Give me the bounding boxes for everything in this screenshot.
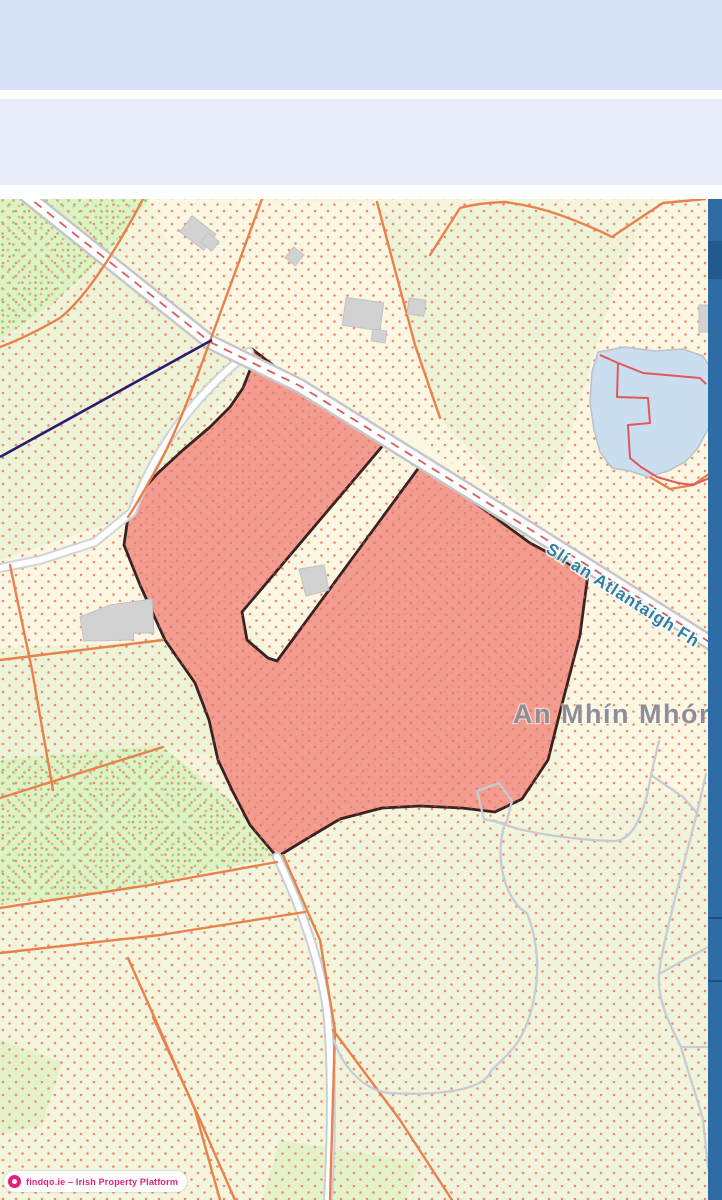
header-band-secondary bbox=[0, 99, 722, 185]
badge-label: findqo.ie – Irish Property Platform bbox=[26, 1177, 178, 1187]
header-divider bbox=[0, 90, 722, 99]
header-divider-2 bbox=[0, 185, 722, 199]
scrollbar-strip[interactable] bbox=[708, 199, 722, 1200]
scrollbar-seam bbox=[708, 917, 722, 919]
map-canvas[interactable]: Slí an Atlantaigh Fh An Mhín Mhór bbox=[0, 199, 722, 1200]
townland-label: An Mhín Mhór bbox=[513, 699, 711, 729]
scrollbar-seam bbox=[708, 980, 722, 982]
findqo-badge[interactable]: findqo.ie – Irish Property Platform bbox=[4, 1171, 187, 1192]
findqo-logo-icon bbox=[8, 1175, 21, 1188]
scrollbar-thumb[interactable] bbox=[708, 241, 722, 279]
header-band-top bbox=[0, 0, 722, 90]
